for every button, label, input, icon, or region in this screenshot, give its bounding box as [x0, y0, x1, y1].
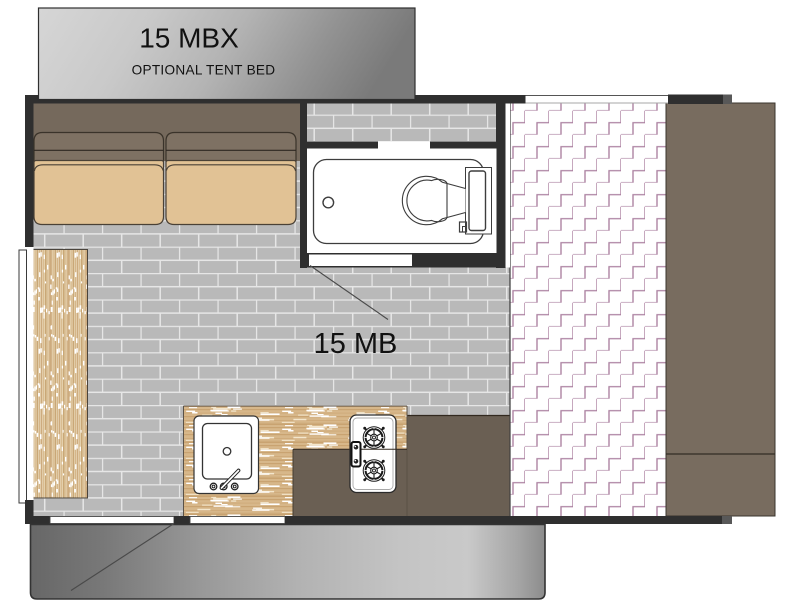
svg-text:15 MBX: 15 MBX	[139, 23, 239, 54]
svg-text:15 MB: 15 MB	[314, 328, 398, 360]
svg-text:OPTIONAL TENT BED: OPTIONAL TENT BED	[132, 63, 276, 78]
